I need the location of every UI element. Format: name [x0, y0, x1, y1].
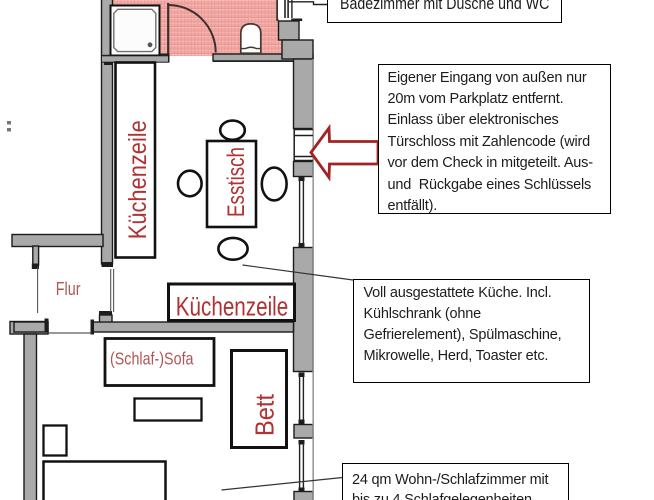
- svg-text:Esstisch: Esstisch: [223, 147, 250, 217]
- svg-text:(Schlaf-)Sofa: (Schlaf-)Sofa: [110, 348, 194, 368]
- svg-text:Bett: Bett: [250, 393, 280, 436]
- svg-text:Küchenzeile: Küchenzeile: [124, 120, 152, 239]
- svg-text:Flur: Flur: [56, 279, 81, 299]
- svg-text:Küchenzeile: Küchenzeile: [176, 292, 289, 322]
